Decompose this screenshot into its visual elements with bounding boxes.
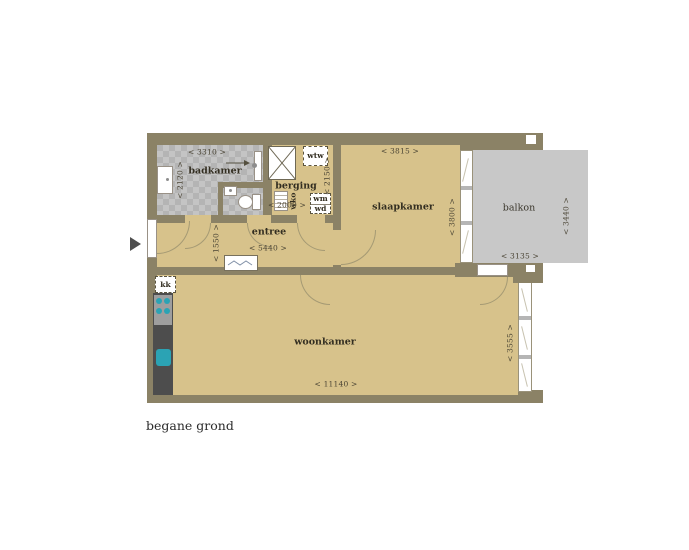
wall-hall-top	[271, 215, 297, 223]
facade-cutout	[532, 283, 543, 390]
wall-hall-bedroom	[333, 133, 341, 230]
doormat-squiggle-icon	[227, 258, 255, 268]
burner-icon	[156, 298, 162, 304]
room-label-badkamer: badkamer	[188, 166, 241, 177]
kitchen-sink	[156, 349, 171, 366]
shaft-cross-icon	[268, 146, 296, 180]
dim-badkamer-width: < 3310 >	[188, 148, 226, 157]
dim-balkon-width: < 3135 >	[501, 252, 539, 261]
floorplan-page: wtw wko wm wd kk badkamer berging entree…	[0, 0, 689, 550]
dim-berging-depth: < 2150 >	[323, 157, 332, 195]
basin-tap-icon	[229, 189, 232, 192]
kitchenette-label: kk	[160, 280, 170, 289]
wall-notch	[526, 265, 535, 272]
balcony-door-frame	[477, 264, 508, 276]
washbasin	[157, 166, 173, 194]
washer-dryer-unit: wm wd	[310, 193, 331, 214]
shower-head-icon	[252, 163, 257, 168]
heat-recovery-label: wtw	[307, 151, 323, 160]
wall-livingroom-top	[330, 267, 473, 275]
dim-entree-depth: < 1550 >	[212, 224, 221, 262]
burner-icon	[164, 308, 170, 314]
burner-icon	[156, 308, 162, 314]
room-label-woonkamer: woonkamer	[294, 337, 356, 348]
window-mullion	[519, 355, 531, 359]
room-label-balkon: balkon	[503, 203, 535, 214]
kitchenette-box: kk	[155, 276, 176, 293]
floor-title: begane grond	[146, 418, 234, 433]
room-label-entree: entree	[252, 227, 286, 238]
glazing-mullion	[461, 221, 472, 225]
dim-berging-width: < 2000 >	[268, 201, 306, 210]
dim-badkamer-depth: < 2120 >	[176, 161, 185, 199]
washbasin-tap-icon	[166, 178, 169, 181]
dryer-label: wd	[311, 205, 330, 214]
dim-balkon-depth: < 3440 >	[562, 197, 571, 235]
glazing-mullion	[461, 186, 472, 190]
entrance-arrow-icon	[130, 237, 141, 251]
wall-hall-top	[211, 215, 247, 223]
dim-woonkamer-width: < 11140 >	[315, 380, 358, 389]
toilet-bowl	[238, 195, 253, 209]
livingroom-floor	[157, 275, 518, 395]
window-mullion	[519, 316, 531, 320]
wall-notch	[526, 135, 536, 144]
burner-icon	[164, 298, 170, 304]
dim-woonkamer-depth: < 3555 >	[506, 324, 515, 362]
room-label-slaapkamer: slaapkamer	[372, 202, 434, 213]
toilet-cistern	[252, 194, 261, 210]
dim-slaapkamer-depth: < 3800 >	[448, 198, 457, 236]
front-door-frame	[147, 219, 157, 258]
dim-slaapkamer-width: < 3815 >	[381, 147, 419, 156]
room-label-berging: berging	[275, 181, 317, 192]
dim-entree-width: < 5440 >	[249, 244, 287, 253]
